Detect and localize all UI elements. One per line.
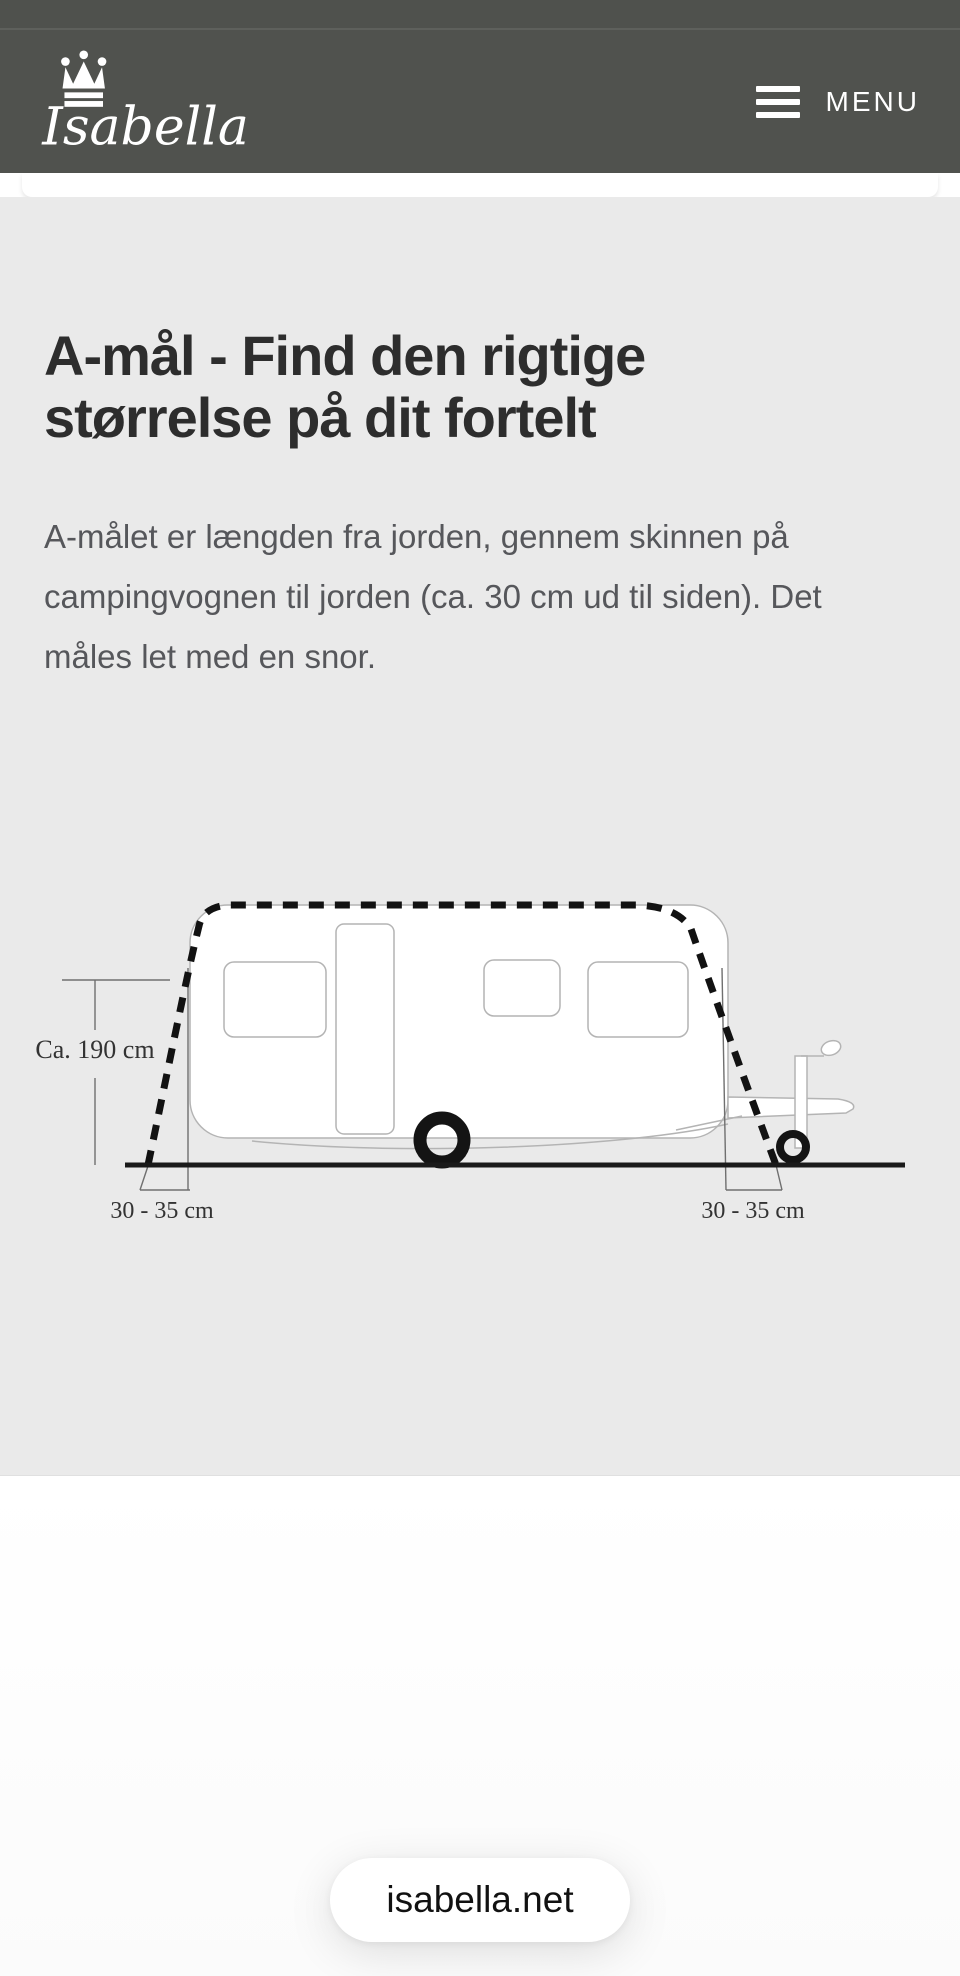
page-title-line1: A-mål - Find den rigtige	[44, 325, 724, 387]
a-measurement-diagram: Ca. 190 cm 30 - 35 cm 30 - 35 cm	[0, 850, 960, 1250]
isabella-logo[interactable]: Isabella	[40, 49, 272, 155]
bracket-right	[726, 1165, 782, 1190]
height-label: Ca. 190 cm	[35, 1035, 154, 1064]
offset-label-left: 30 - 35 cm	[110, 1198, 214, 1224]
site-header: Isabella MENU	[0, 30, 960, 173]
scrolled-card-edge	[22, 173, 938, 197]
menu-button[interactable]: MENU	[756, 86, 920, 118]
browser-url-text: isabella.net	[386, 1879, 573, 1921]
caravan-door	[336, 924, 394, 1134]
jockey-knob	[819, 1038, 843, 1058]
logo-wordmark: Isabella	[41, 97, 249, 155]
browser-url-pill[interactable]: isabella.net	[330, 1858, 630, 1942]
hamburger-icon	[756, 86, 800, 118]
caravan-window-middle	[484, 960, 560, 1016]
diagram-container: Ca. 190 cm 30 - 35 cm 30 - 35 cm	[0, 850, 960, 1250]
content-section: A-mål - Find den rigtigestørrelse på dit…	[0, 197, 960, 1476]
offset-label-right: 30 - 35 cm	[701, 1198, 805, 1224]
caravan-window-front	[224, 962, 326, 1037]
caravan-window-rear	[588, 962, 688, 1037]
bracket-left	[140, 1166, 190, 1190]
menu-label: MENU	[826, 86, 920, 118]
intro-paragraph: A-målet er længden fra jorden, gennem sk…	[44, 507, 916, 687]
drawbar-beam	[728, 1097, 854, 1118]
page-title-line2: størrelse på dit fortelt	[44, 387, 724, 449]
jockey-wheel-icon	[780, 1134, 806, 1160]
page-title: A-mål - Find den rigtigestørrelse på dit…	[44, 325, 724, 449]
status-strip	[0, 0, 960, 30]
